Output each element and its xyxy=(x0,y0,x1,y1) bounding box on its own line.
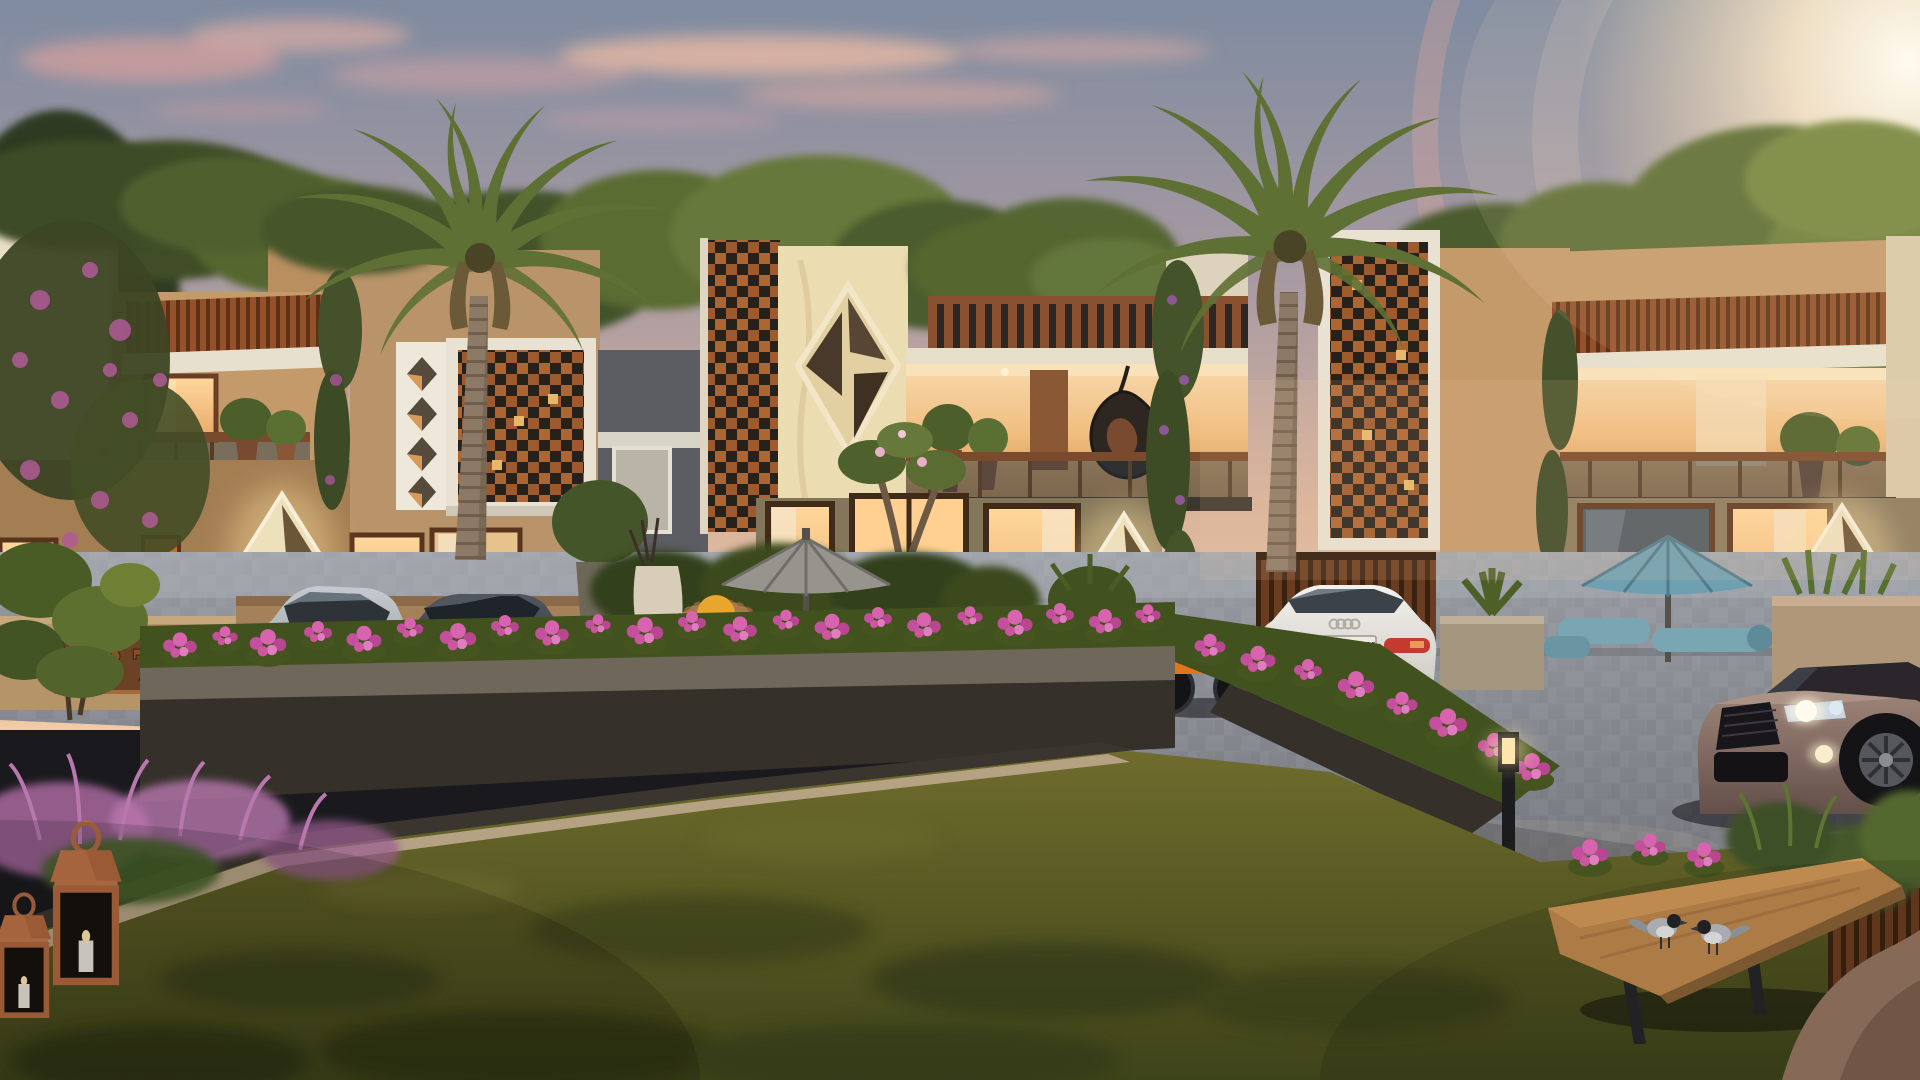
center-house-checker-strip xyxy=(704,240,780,532)
yard-tree xyxy=(552,480,648,564)
balcony-potted-plant xyxy=(220,398,272,442)
left-house-jali-box xyxy=(396,338,596,516)
villa-dusk-render: 37 38 xyxy=(0,0,1920,1080)
scene-canvas: 37 38 xyxy=(0,0,1920,1080)
center-house-balcony xyxy=(902,364,1252,511)
